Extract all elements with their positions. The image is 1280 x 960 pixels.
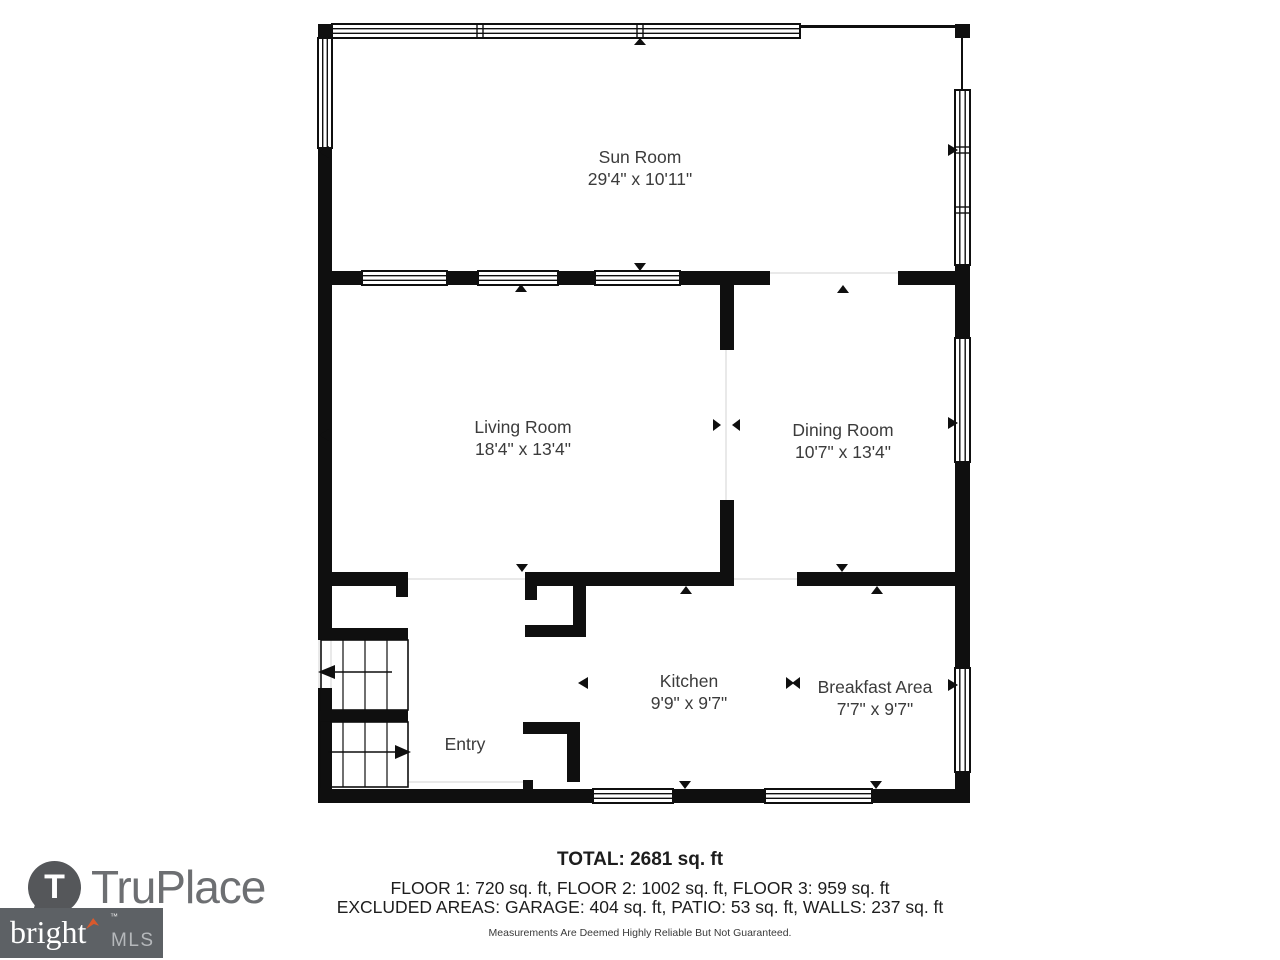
room-label-entry: Entry [445, 733, 486, 755]
room-name: Kitchen [651, 670, 728, 692]
truplace-logo: T TruPlace [28, 861, 265, 914]
room-dims: 7'7" x 9'7" [818, 698, 933, 720]
room-name: Living Room [474, 416, 571, 438]
disclaimer-text: Measurements Are Deemed Highly Reliable … [0, 927, 1280, 939]
bright-mls-text: MLS [111, 930, 155, 952]
bright-wordmark: bright [10, 912, 86, 952]
bright-accent-icon [86, 918, 99, 929]
room-label-living-room: Living Room 18'4" x 13'4" [474, 416, 571, 460]
room-label-kitchen: Kitchen 9'9" x 9'7" [651, 670, 728, 714]
bright-trademark: ™ [110, 912, 118, 921]
room-label-dining-room: Dining Room 10'7" x 13'4" [792, 419, 893, 463]
room-name: Sun Room [588, 146, 692, 168]
threshold-lines [319, 273, 898, 782]
room-name: Entry [445, 733, 486, 755]
floorplan-page: Sun Room 29'4" x 10'11" Living Room 18'4… [0, 0, 1280, 960]
bright-mls-logo: bright ™ MLS [0, 908, 163, 958]
truplace-wordmark: TruPlace [91, 861, 265, 914]
room-dims: 18'4" x 13'4" [474, 438, 571, 460]
room-label-breakfast-area: Breakfast Area 7'7" x 9'7" [818, 676, 933, 720]
floorplan-drawing [0, 0, 1280, 960]
room-dims: 10'7" x 13'4" [792, 441, 893, 463]
room-dims: 9'9" x 9'7" [651, 692, 728, 714]
truplace-pin-letter: T [28, 861, 81, 914]
room-label-sun-room: Sun Room 29'4" x 10'11" [588, 146, 692, 190]
room-name: Breakfast Area [818, 676, 933, 698]
truplace-pin-icon: T [28, 861, 81, 914]
room-dims: 29'4" x 10'11" [588, 168, 692, 190]
room-name: Dining Room [792, 419, 893, 441]
